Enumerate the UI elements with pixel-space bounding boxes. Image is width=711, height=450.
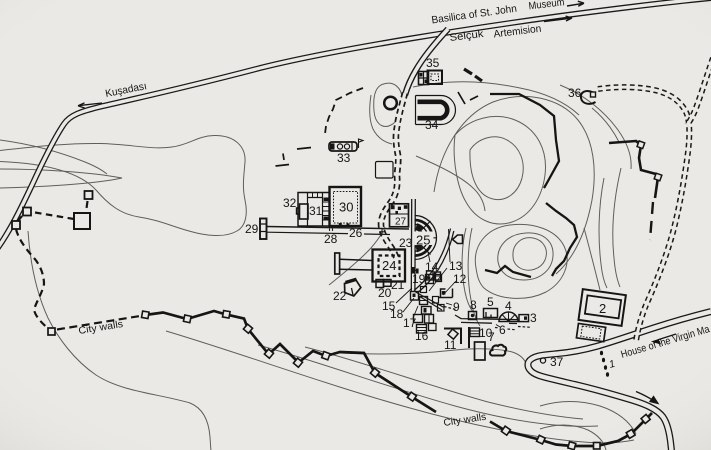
- svg-text:19: 19: [412, 272, 426, 286]
- svg-text:27: 27: [395, 217, 407, 228]
- svg-text:3: 3: [530, 311, 537, 325]
- svg-text:26: 26: [349, 226, 363, 240]
- svg-text:6: 6: [499, 323, 506, 337]
- svg-text:11: 11: [444, 338, 457, 352]
- svg-text:17: 17: [403, 316, 417, 330]
- svg-text:28: 28: [324, 232, 338, 246]
- svg-text:2: 2: [599, 301, 606, 316]
- svg-text:13: 13: [449, 259, 463, 273]
- svg-text:34: 34: [425, 118, 439, 132]
- svg-text:12: 12: [453, 272, 467, 286]
- svg-text:37: 37: [550, 355, 564, 369]
- svg-text:21: 21: [391, 278, 405, 292]
- svg-text:36: 36: [568, 86, 582, 100]
- svg-text:23: 23: [399, 236, 413, 250]
- svg-text:16: 16: [415, 329, 429, 343]
- svg-text:18: 18: [390, 307, 404, 321]
- svg-text:4: 4: [505, 299, 512, 313]
- svg-text:31: 31: [309, 204, 323, 218]
- svg-text:14: 14: [425, 260, 439, 274]
- svg-text:10: 10: [479, 326, 493, 340]
- svg-text:35: 35: [426, 56, 440, 70]
- svg-text:5: 5: [487, 295, 494, 309]
- svg-text:24: 24: [382, 258, 396, 273]
- svg-text:30: 30: [339, 200, 353, 215]
- svg-text:29: 29: [245, 222, 259, 236]
- svg-text:9: 9: [453, 300, 460, 314]
- svg-text:20: 20: [378, 286, 392, 300]
- svg-text:32: 32: [283, 196, 297, 210]
- svg-text:8: 8: [470, 298, 477, 312]
- svg-text:22: 22: [333, 289, 347, 303]
- svg-text:33: 33: [337, 151, 351, 165]
- svg-text:25: 25: [416, 233, 430, 248]
